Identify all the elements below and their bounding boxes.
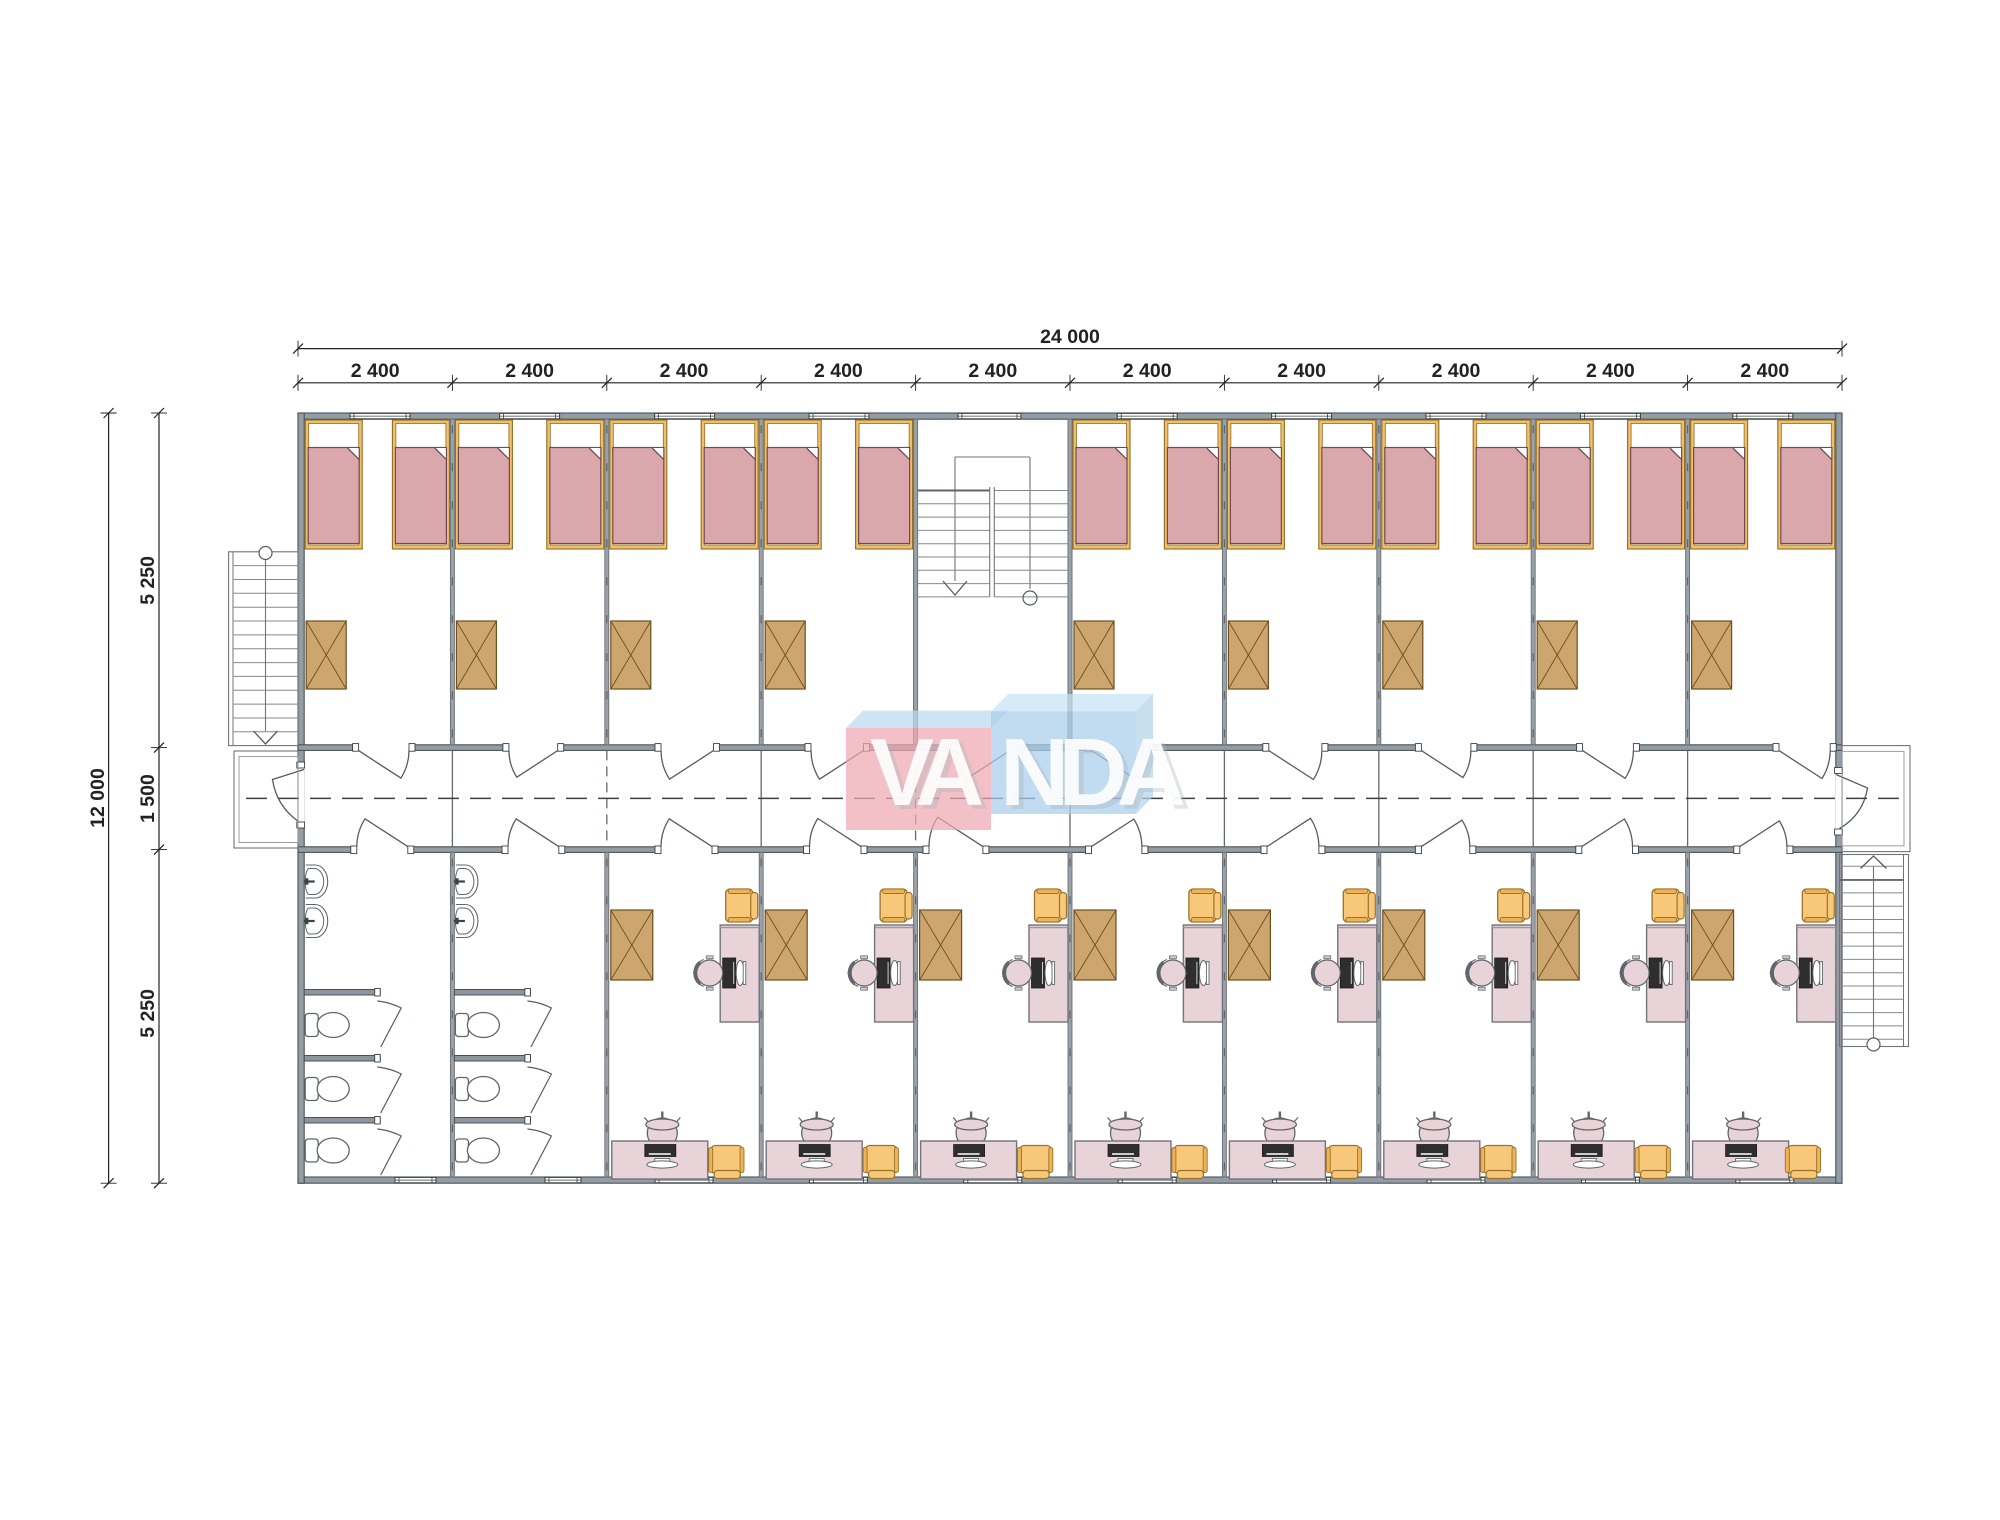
svg-text:5 250: 5 250 xyxy=(137,556,159,605)
svg-text:2 400: 2 400 xyxy=(814,360,863,382)
svg-text:2 400: 2 400 xyxy=(1123,360,1172,382)
svg-text:2 400: 2 400 xyxy=(660,360,709,382)
svg-text:2 400: 2 400 xyxy=(1740,360,1789,382)
svg-text:NDA: NDA xyxy=(1000,719,1184,826)
svg-text:2 400: 2 400 xyxy=(1586,360,1635,382)
svg-text:24 000: 24 000 xyxy=(1040,326,1100,348)
svg-text:2 400: 2 400 xyxy=(1277,360,1326,382)
svg-text:VA: VA xyxy=(870,719,982,826)
svg-text:2 400: 2 400 xyxy=(505,360,554,382)
svg-text:5 250: 5 250 xyxy=(137,989,159,1038)
svg-text:2 400: 2 400 xyxy=(968,360,1017,382)
svg-text:2 400: 2 400 xyxy=(351,360,400,382)
svg-text:12 000: 12 000 xyxy=(87,768,109,828)
svg-text:2 400: 2 400 xyxy=(1432,360,1481,382)
svg-text:1 500: 1 500 xyxy=(137,774,159,823)
